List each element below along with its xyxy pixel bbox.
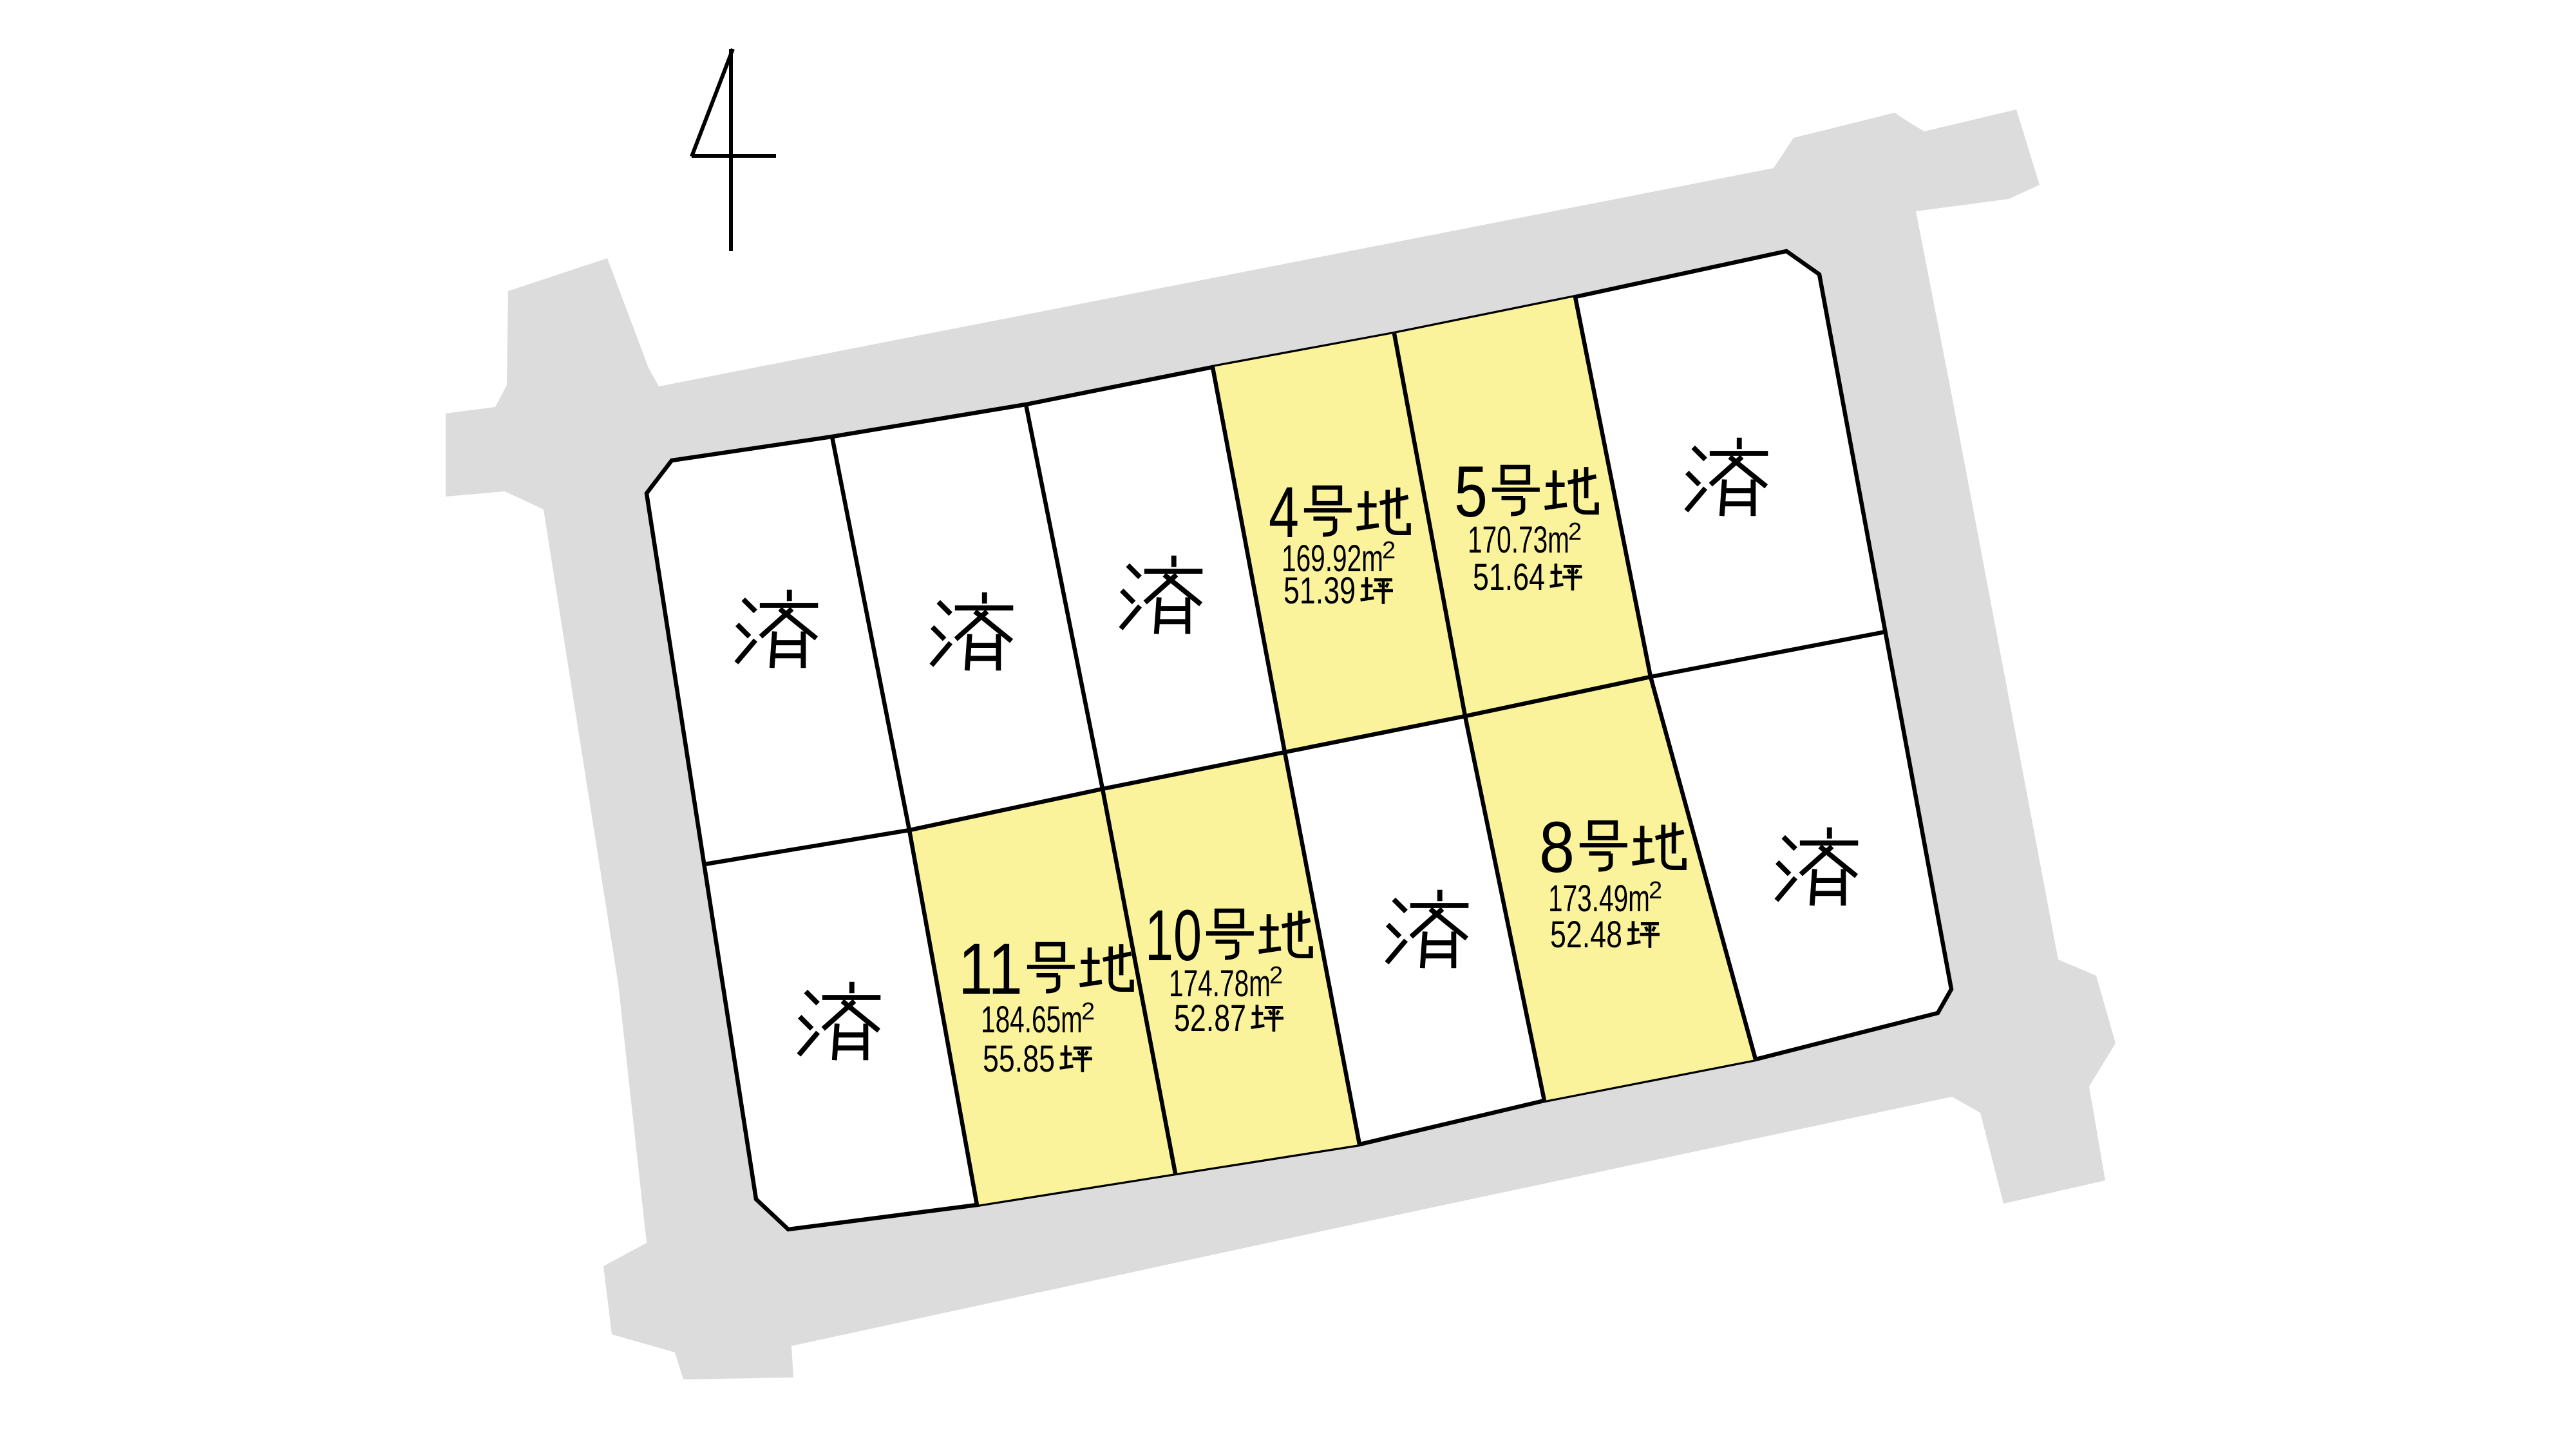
svg-text:2: 2: [1382, 537, 1396, 564]
svg-text:2: 2: [1649, 877, 1662, 904]
svg-text:51.39: 51.39: [1283, 570, 1356, 612]
svg-text:51.64: 51.64: [1473, 556, 1545, 598]
svg-text:2: 2: [1568, 518, 1582, 545]
svg-text:52.48: 52.48: [1550, 914, 1622, 956]
svg-text:52.87: 52.87: [1174, 998, 1246, 1039]
svg-text:11: 11: [958, 929, 1023, 1009]
svg-text:184.65m: 184.65m: [981, 999, 1083, 1041]
svg-text:2: 2: [1081, 998, 1095, 1025]
svg-text:170.73m: 170.73m: [1468, 519, 1569, 561]
svg-text:8: 8: [1539, 807, 1575, 887]
svg-text:55.85: 55.85: [983, 1038, 1055, 1080]
svg-text:2: 2: [1269, 962, 1283, 989]
